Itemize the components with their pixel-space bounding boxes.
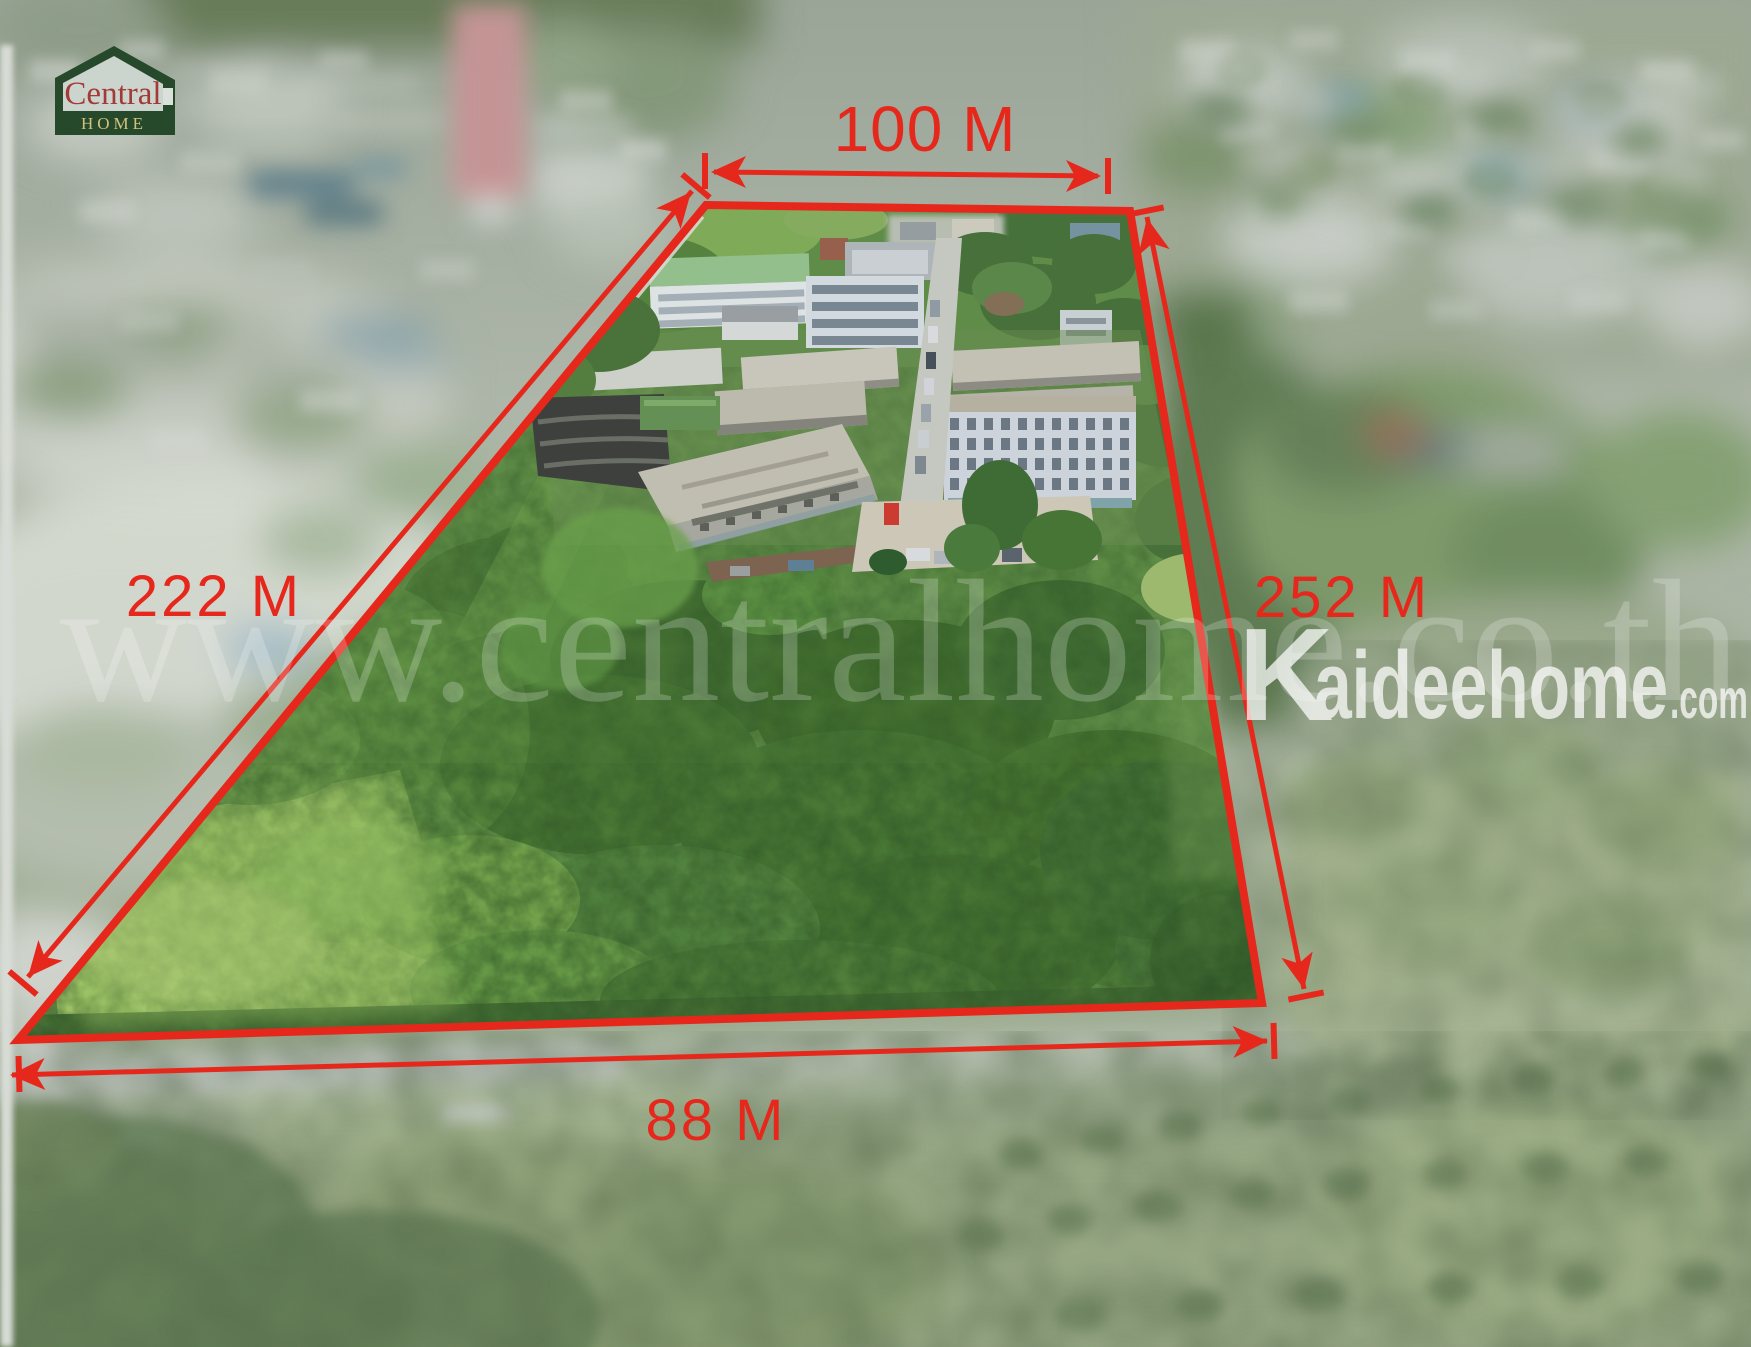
- svg-text:100 M: 100 M: [834, 93, 1017, 165]
- svg-text:88 M: 88 M: [646, 1088, 787, 1153]
- svg-text:aideehome: aideehome: [1314, 632, 1668, 739]
- svg-text:.com: .com: [1670, 667, 1748, 730]
- svg-text:Central: Central: [64, 76, 161, 112]
- svg-text:HOME: HOME: [81, 114, 147, 133]
